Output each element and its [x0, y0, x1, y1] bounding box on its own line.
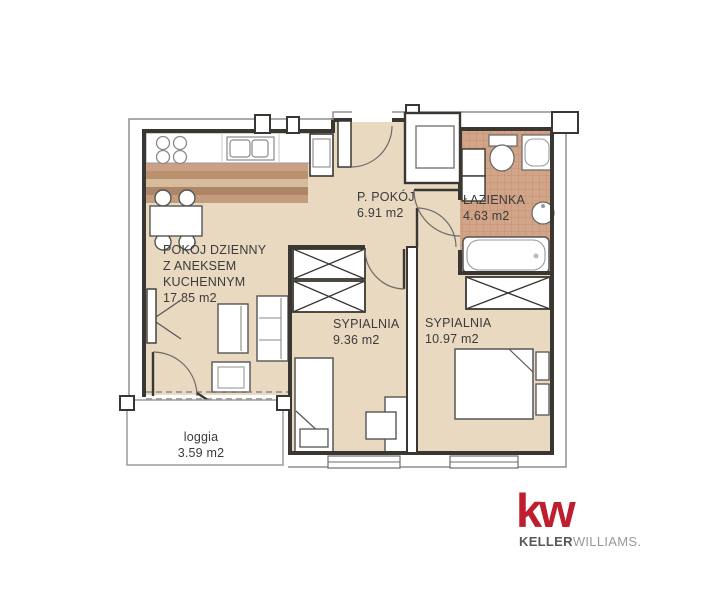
kitchen-sink-icon	[227, 137, 274, 160]
logo-williams-text: WILLIAMS.	[573, 534, 641, 549]
bedroom-divider-wall	[407, 247, 417, 453]
logo-keller-text: KELLER	[519, 534, 573, 549]
bathtub-icon	[463, 237, 549, 273]
washbasin-icon	[522, 135, 552, 170]
label-bedroom-1: SYPIALNIA 9.36 m2	[333, 316, 399, 348]
label-loggia: loggia 3.59 m2	[156, 429, 246, 461]
keller-williams-logo: kw KELLERWILLIAMS.	[516, 489, 696, 549]
label-bathroom: ŁAZIENKA 4.63 m2	[463, 192, 525, 224]
armchair-icon	[218, 304, 248, 353]
floor-plan-page: POKÓJ DZIENNY Z ANEKSEM KUCHENNYM 17.85 …	[0, 0, 710, 596]
kw-logo-name: KELLERWILLIAMS.	[519, 534, 696, 549]
coffee-table-icon	[212, 362, 250, 392]
single-bed-icon	[295, 358, 333, 453]
kw-logo-mark: kw	[516, 489, 696, 533]
label-bedroom-2: SYPIALNIA 10.97 m2	[425, 315, 491, 347]
label-hall: P. POKÓJ 6.91 m2	[357, 189, 415, 221]
window	[328, 456, 518, 468]
label-living-room: POKÓJ DZIENNY Z ANEKSEM KUCHENNYM 17.85 …	[163, 242, 266, 306]
fridge-icon	[310, 134, 333, 176]
